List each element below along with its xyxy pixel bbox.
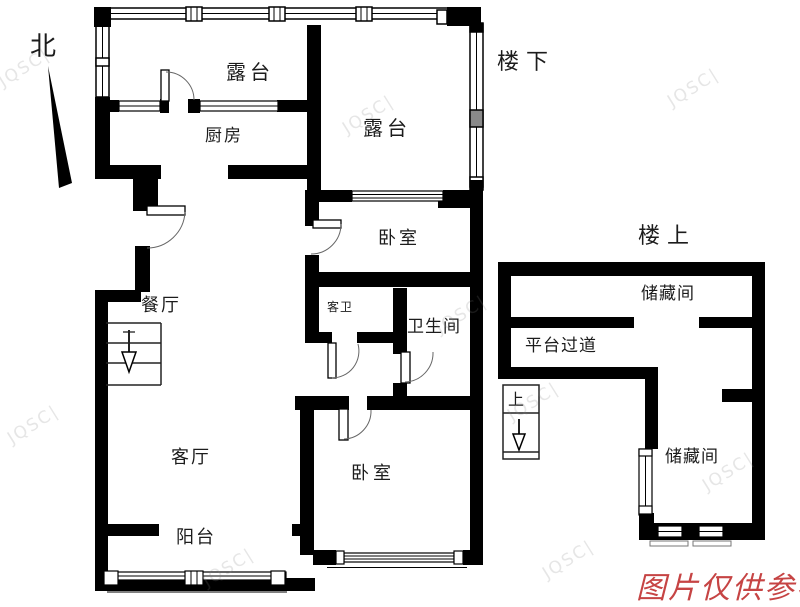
north-label: 北 — [30, 34, 56, 60]
level-label-upstairs: 楼上 — [638, 226, 696, 248]
walls-upper-unit — [498, 262, 765, 540]
room-label-guest-bath: 客卫 — [327, 301, 353, 313]
room-label-balcony: 阳台 — [176, 529, 216, 547]
room-label-living: 客厅 — [171, 449, 211, 467]
room-label-storage-lower: 储藏间 — [665, 449, 719, 466]
stairs-lower — [106, 323, 161, 385]
disclaimer-text: 图片仅供参考 — [636, 563, 800, 607]
room-label-dining: 餐厅 — [141, 297, 181, 315]
room-label-storage-upper: 储藏间 — [641, 286, 695, 303]
north-arrow-icon — [48, 66, 72, 188]
room-label-corridor: 平台过道 — [525, 338, 597, 355]
floorplan-page: { "plan": { "compass": { "north_label": … — [0, 0, 800, 600]
room-label-bathroom: 卫生间 — [407, 319, 461, 336]
room-label-terrace-right: 露台 — [363, 118, 411, 138]
room-label-terrace-top: 露台 — [226, 62, 274, 82]
stairs-up-label: 上 — [508, 392, 524, 408]
terrace-railings — [96, 7, 483, 190]
room-label-kitchen: 厨房 — [205, 128, 243, 145]
room-label-bedroom-lower: 卧室 — [351, 465, 395, 483]
room-label-bedroom-upper: 卧室 — [378, 230, 420, 248]
level-label-downstairs: 楼下 — [497, 52, 555, 74]
